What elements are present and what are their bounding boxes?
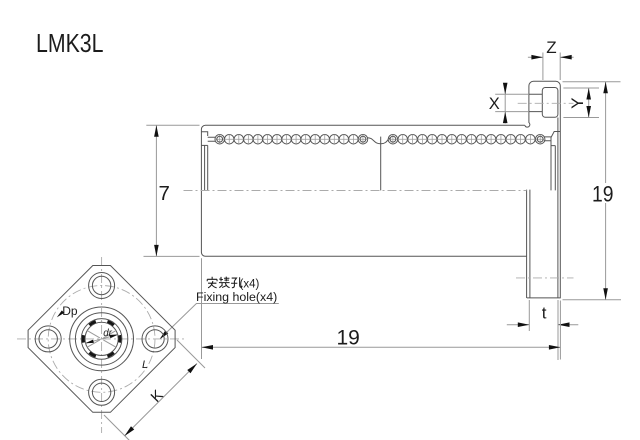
svg-text:19: 19 — [592, 181, 614, 206]
svg-text:X: X — [489, 95, 500, 113]
svg-text:Fixing hole(x4): Fixing hole(x4) — [196, 290, 277, 304]
svg-text:19: 19 — [337, 326, 360, 349]
svg-text:dr: dr — [103, 328, 112, 339]
svg-text:LMK3L: LMK3L — [36, 28, 104, 58]
svg-text:Z: Z — [546, 38, 556, 57]
svg-text:7: 7 — [159, 182, 170, 205]
svg-text:L: L — [142, 359, 148, 371]
svg-text:Dp: Dp — [62, 304, 78, 318]
svg-text:K: K — [148, 387, 167, 406]
svg-text:t: t — [542, 304, 547, 323]
svg-text:(x4): (x4) — [240, 279, 260, 291]
svg-text:Y: Y — [568, 98, 587, 109]
